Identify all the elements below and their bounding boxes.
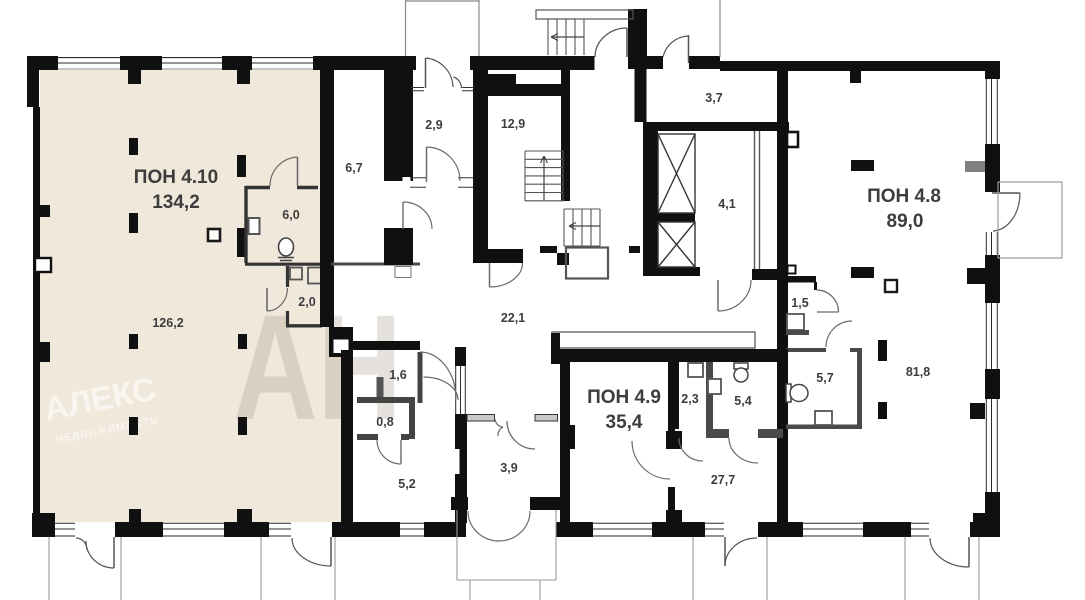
svg-text:35,4: 35,4 bbox=[606, 412, 643, 433]
svg-text:5,7: 5,7 bbox=[816, 371, 833, 385]
svg-text:5,2: 5,2 bbox=[398, 477, 415, 491]
svg-text:2,3: 2,3 bbox=[681, 392, 698, 406]
svg-text:134,2: 134,2 bbox=[152, 192, 200, 213]
svg-text:4,1: 4,1 bbox=[718, 197, 735, 211]
svg-text:12,9: 12,9 bbox=[501, 117, 525, 131]
svg-text:ПОН 4.9: ПОН 4.9 bbox=[587, 387, 661, 408]
svg-text:1,5: 1,5 bbox=[791, 296, 808, 310]
svg-text:6,7: 6,7 bbox=[345, 161, 362, 175]
svg-text:3,7: 3,7 bbox=[705, 91, 722, 105]
svg-text:81,8: 81,8 bbox=[906, 365, 930, 379]
svg-text:89,0: 89,0 bbox=[887, 211, 924, 232]
svg-text:22,1: 22,1 bbox=[501, 311, 525, 325]
svg-text:3,9: 3,9 bbox=[500, 461, 517, 475]
svg-text:0,8: 0,8 bbox=[376, 415, 393, 429]
svg-text:ПОН 4.8: ПОН 4.8 bbox=[867, 186, 941, 207]
svg-text:5,4: 5,4 bbox=[734, 394, 751, 408]
svg-text:1,6: 1,6 bbox=[389, 368, 406, 382]
svg-text:2,0: 2,0 bbox=[298, 295, 315, 309]
svg-text:126,2: 126,2 bbox=[152, 316, 183, 330]
svg-text:2,9: 2,9 bbox=[425, 118, 442, 132]
svg-text:27,7: 27,7 bbox=[711, 473, 735, 487]
svg-text:ПОН 4.10: ПОН 4.10 bbox=[134, 167, 218, 188]
svg-text:6,0: 6,0 bbox=[282, 208, 299, 222]
